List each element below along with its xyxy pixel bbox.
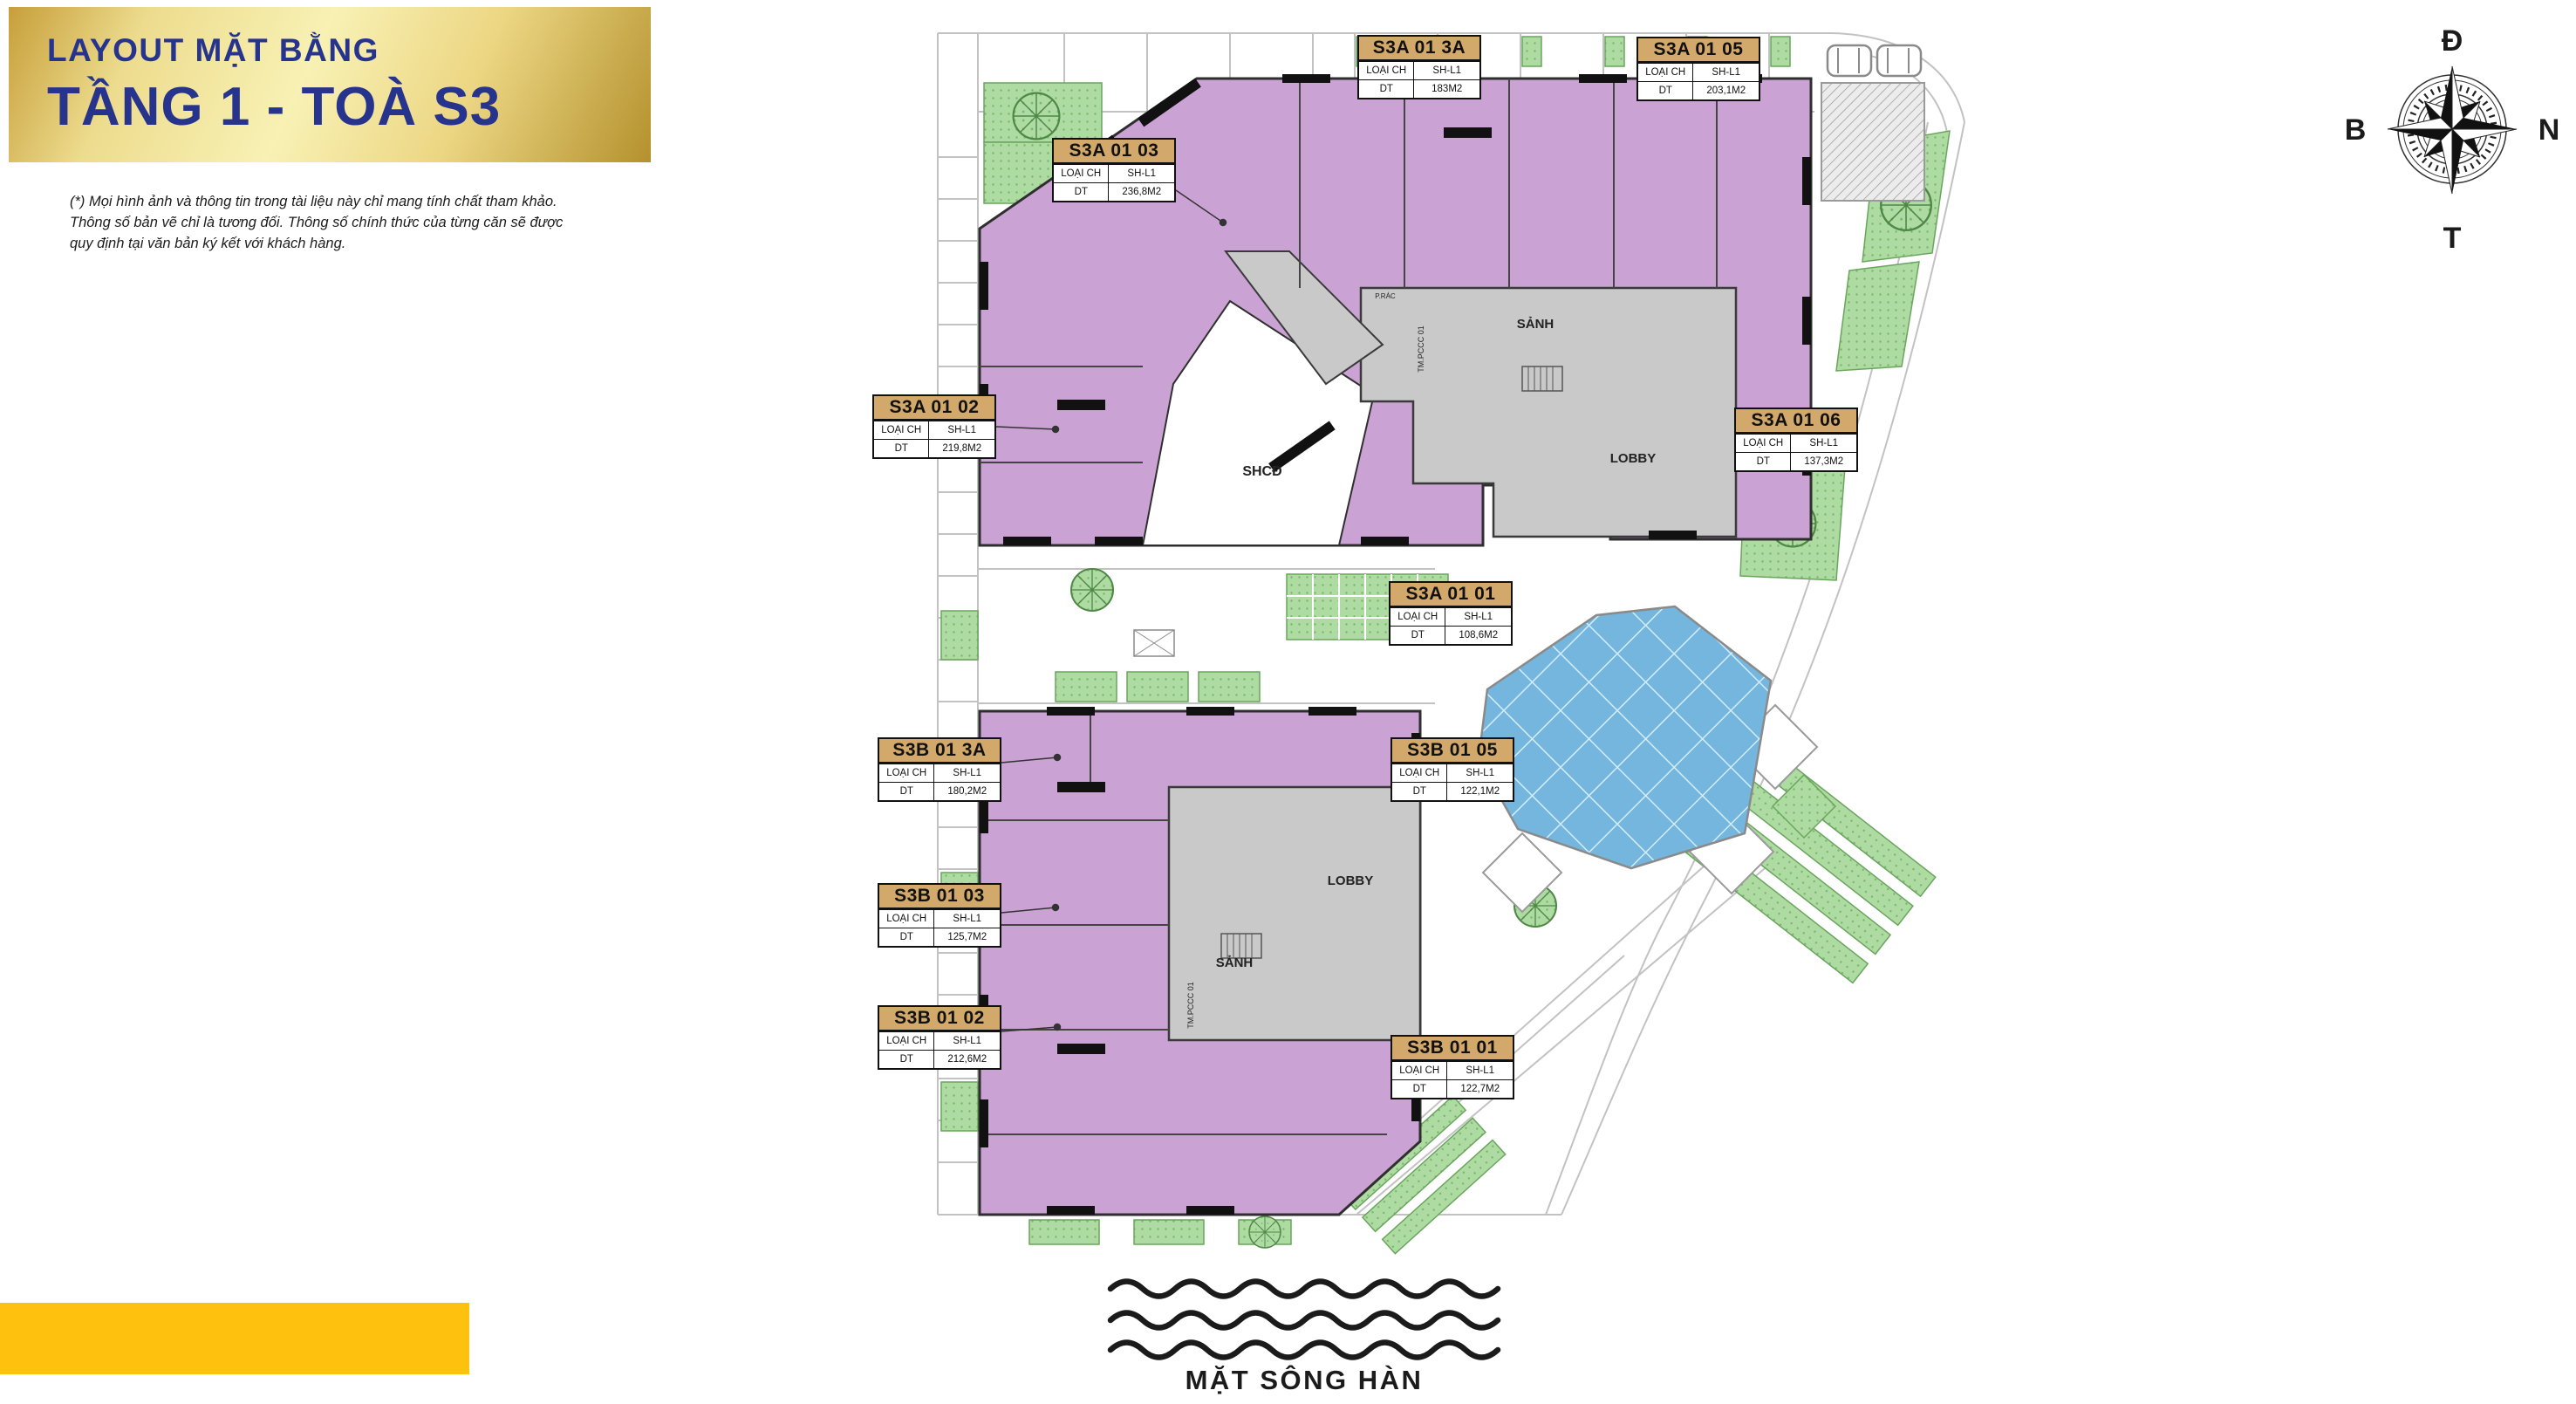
area-label-lobby-a: LOBBY xyxy=(1610,451,1657,466)
unit-card-s3b-01-02[interactable]: S3B 01 02 LOẠI CHSH-L1 DT212,6M2 xyxy=(878,1005,1001,1070)
unit-area-label: DT xyxy=(1390,627,1445,644)
unit-type-label: LOẠI CH xyxy=(874,421,929,439)
unit-card-s3a-01-03[interactable]: S3A 01 03 LOẠI CHSH-L1 DT236,8M2 xyxy=(1052,138,1176,202)
unit-area-value: 219,8M2 xyxy=(929,440,994,457)
disclaimer-text: (*) Mọi hình ảnh và thông tin trong tài … xyxy=(70,192,569,255)
unit-type-value: SH-L1 xyxy=(929,421,994,439)
unit-area-label: DT xyxy=(879,928,934,946)
unit-code: S3B 01 03 xyxy=(879,885,1000,909)
parked-cars xyxy=(1828,45,1921,76)
area-label-pccc-a: TM.PCCC 01 xyxy=(1417,325,1425,373)
unit-area-label: DT xyxy=(1392,783,1447,800)
unit-type-label: LOẠI CH xyxy=(1390,608,1445,626)
unit-card-s3b-01-01[interactable]: S3B 01 01 LOẠI CHSH-L1 DT122,7M2 xyxy=(1390,1035,1514,1099)
hatched-paving xyxy=(1821,83,1924,201)
unit-type-label: LOẠI CH xyxy=(1638,64,1693,81)
unit-area-value: 122,7M2 xyxy=(1447,1080,1513,1098)
brochure-page: SHCĐ SẢNH LOBBY TM.PCCC 01 P.RÁC xyxy=(0,0,2576,1404)
unit-area-value: 203,1M2 xyxy=(1693,82,1759,99)
bottom-accent-bar xyxy=(0,1303,469,1374)
compass-label-north: B xyxy=(2345,113,2367,147)
area-label-sanh-a: SẢNH xyxy=(1517,317,1554,332)
unit-card-s3a-01-01[interactable]: S3A 01 01 LOẠI CHSH-L1 DT108,6M2 xyxy=(1389,581,1513,646)
unit-code: S3B 01 01 xyxy=(1392,1037,1513,1061)
compass-label-west: T xyxy=(2443,222,2462,255)
car-icon xyxy=(1828,45,1871,76)
compass-label-south: N xyxy=(2538,113,2560,147)
unit-area-label: DT xyxy=(879,1051,934,1068)
unit-type-label: LOẠI CH xyxy=(879,764,934,782)
unit-card-s3b-01-3a[interactable]: S3B 01 3A LOẠI CHSH-L1 DT180,2M2 xyxy=(878,737,1001,802)
unit-type-label: LOẠI CH xyxy=(1054,165,1109,182)
unit-area-value: 137,3M2 xyxy=(1791,453,1856,470)
unit-card-s3a-01-06[interactable]: S3A 01 06 LOẠI CHSH-L1 DT137,3M2 xyxy=(1734,408,1858,472)
unit-area-value: 212,6M2 xyxy=(934,1051,1000,1068)
unit-code: S3B 01 05 xyxy=(1392,739,1513,764)
unit-area-label: DT xyxy=(1054,183,1109,201)
compass-icon: Đ N T B xyxy=(2345,24,2560,255)
unit-code: S3A 01 06 xyxy=(1736,409,1856,434)
unit-card-s3a-01-3a[interactable]: S3A 01 3A LOẠI CHSH-L1 DT183M2 xyxy=(1357,35,1481,99)
unit-type-value: SH-L1 xyxy=(1693,64,1759,81)
unit-area-value: 122,1M2 xyxy=(1447,783,1513,800)
area-label-lobby-b: LOBBY xyxy=(1328,873,1374,888)
unit-area-label: DT xyxy=(1736,453,1791,470)
unit-card-s3a-01-05[interactable]: S3A 01 05 LOẠI CHSH-L1 DT203,1M2 xyxy=(1636,37,1760,101)
area-label-pccc-b: TM.PCCC 01 xyxy=(1186,982,1195,1029)
unit-code: S3B 01 02 xyxy=(879,1007,1000,1031)
unit-area-label: DT xyxy=(879,783,934,800)
unit-area-value: 108,6M2 xyxy=(1445,627,1511,644)
unit-type-label: LOẠI CH xyxy=(879,1032,934,1050)
unit-type-label: LOẠI CH xyxy=(1359,62,1414,79)
unit-area-value: 183M2 xyxy=(1414,80,1479,98)
area-label-sanh-b: SẢNH xyxy=(1216,955,1254,970)
unit-area-label: DT xyxy=(874,440,929,457)
unit-area-value: 180,2M2 xyxy=(934,783,1000,800)
unit-area-value: 236,8M2 xyxy=(1109,183,1174,201)
unit-code: S3A 01 3A xyxy=(1359,37,1479,61)
unit-code: S3A 01 01 xyxy=(1390,583,1511,607)
unit-code: S3A 01 03 xyxy=(1054,140,1174,164)
unit-type-label: LOẠI CH xyxy=(1736,435,1791,452)
unit-type-label: LOẠI CH xyxy=(1392,764,1447,782)
unit-type-label: LOẠI CH xyxy=(879,910,934,928)
area-label-p-rac: P.RÁC xyxy=(1375,292,1396,300)
car-icon xyxy=(1877,45,1921,76)
unit-card-s3a-01-02[interactable]: S3A 01 02 LOẠI CHSH-L1 DT219,8M2 xyxy=(872,394,996,459)
unit-card-s3b-01-05[interactable]: S3B 01 05 LOẠI CHSH-L1 DT122,1M2 xyxy=(1390,737,1514,802)
unit-type-label: LOẠI CH xyxy=(1392,1062,1447,1079)
page-title-line1: LAYOUT MẶT BẰNG xyxy=(47,32,651,69)
river-label: MẶT SÔNG HÀN xyxy=(1117,1365,1492,1396)
unit-type-value: SH-L1 xyxy=(934,1032,1000,1050)
unit-type-value: SH-L1 xyxy=(1414,62,1479,79)
unit-code: S3A 01 05 xyxy=(1638,38,1759,63)
unit-type-value: SH-L1 xyxy=(1447,1062,1513,1079)
unit-type-value: SH-L1 xyxy=(1791,435,1856,452)
unit-area-label: DT xyxy=(1359,80,1414,98)
garden-kiosk xyxy=(1134,630,1174,656)
unit-area-value: 125,7M2 xyxy=(934,928,1000,946)
unit-type-value: SH-L1 xyxy=(1109,165,1174,182)
unit-type-value: SH-L1 xyxy=(934,764,1000,782)
unit-type-value: SH-L1 xyxy=(1447,764,1513,782)
compass-label-east: Đ xyxy=(2442,24,2463,58)
title-banner: LAYOUT MẶT BẰNG TẦNG 1 - TOÀ S3 xyxy=(9,7,651,162)
unit-area-label: DT xyxy=(1638,82,1693,99)
area-label-shcd: SHCĐ xyxy=(1242,464,1281,479)
unit-card-s3b-01-03[interactable]: S3B 01 03 LOẠI CHSH-L1 DT125,7M2 xyxy=(878,883,1001,948)
unit-area-label: DT xyxy=(1392,1080,1447,1098)
unit-type-value: SH-L1 xyxy=(934,910,1000,928)
building-s3b: SẢNH LOBBY TM.PCCC 01 xyxy=(980,707,1420,1215)
unit-code: S3A 01 02 xyxy=(874,396,994,421)
unit-code: S3B 01 3A xyxy=(879,739,1000,764)
unit-type-value: SH-L1 xyxy=(1445,608,1511,626)
page-title-line2: TẦNG 1 - TOÀ S3 xyxy=(47,76,651,138)
river-waves-icon xyxy=(1110,1282,1498,1358)
